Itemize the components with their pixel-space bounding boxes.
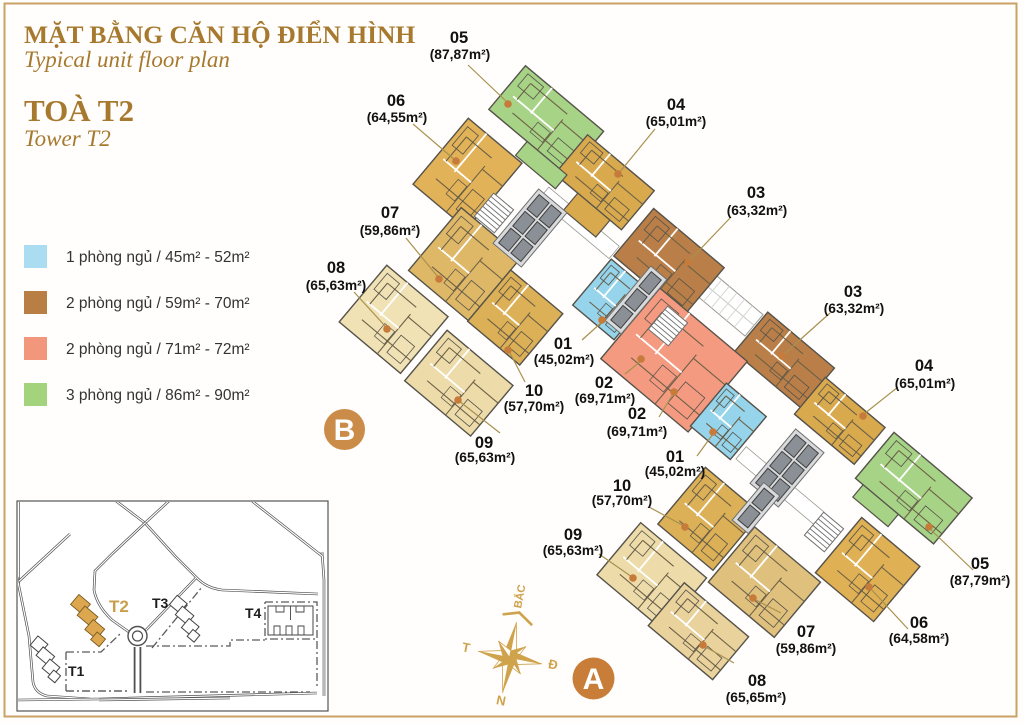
svg-text:(65,01m²): (65,01m²) — [895, 376, 956, 391]
svg-text:06: 06 — [387, 92, 405, 110]
svg-text:T4: T4 — [245, 605, 262, 621]
svg-text:09: 09 — [564, 526, 582, 544]
svg-text:1 phòng ngủ / 45m² - 52m²: 1 phòng ngủ / 45m² - 52m² — [66, 249, 250, 266]
svg-text:T3: T3 — [152, 595, 169, 611]
svg-text:(64,58m²): (64,58m²) — [889, 631, 950, 646]
svg-text:TOÀ T2: TOÀ T2 — [24, 93, 134, 128]
svg-text:3 phòng ngủ / 86m² - 90m²: 3 phòng ngủ / 86m² - 90m² — [66, 387, 250, 404]
svg-text:2 phòng ngủ / 59m² - 70m²: 2 phòng ngủ / 59m² - 70m² — [66, 295, 250, 312]
svg-text:05: 05 — [450, 29, 468, 47]
svg-text:(65,65m²): (65,65m²) — [726, 690, 787, 705]
svg-text:2 phòng ngủ / 71m² - 72m²: 2 phòng ngủ / 71m² - 72m² — [66, 341, 250, 358]
svg-text:MẶT BẰNG CĂN HỘ ĐIỂN HÌNH: MẶT BẰNG CĂN HỘ ĐIỂN HÌNH — [24, 20, 415, 49]
svg-text:(65,63m²): (65,63m²) — [543, 543, 604, 558]
svg-text:Typical unit floor plan: Typical unit floor plan — [24, 47, 230, 72]
svg-text:(57,70m²): (57,70m²) — [592, 493, 653, 508]
svg-text:(57,70m²): (57,70m²) — [504, 399, 565, 414]
svg-text:08: 08 — [748, 672, 766, 690]
svg-text:02: 02 — [595, 374, 613, 392]
svg-text:06: 06 — [910, 614, 928, 632]
svg-text:(45,02m²): (45,02m²) — [534, 352, 595, 367]
svg-text:(45,02m²): (45,02m²) — [645, 464, 706, 479]
svg-text:04: 04 — [915, 357, 934, 375]
svg-text:(65,63m²): (65,63m²) — [306, 278, 367, 293]
svg-text:(63,32m²): (63,32m²) — [727, 203, 788, 218]
svg-text:(65,01m²): (65,01m²) — [646, 114, 707, 129]
svg-text:(64,55m²): (64,55m²) — [367, 110, 428, 125]
svg-text:(87,87m²): (87,87m²) — [430, 47, 491, 62]
svg-text:10: 10 — [525, 382, 543, 400]
svg-text:T1: T1 — [68, 663, 85, 679]
svg-text:(63,32m²): (63,32m²) — [824, 301, 885, 316]
svg-text:(59,86m²): (59,86m²) — [776, 641, 837, 656]
svg-text:03: 03 — [747, 184, 765, 202]
svg-text:02: 02 — [628, 405, 646, 423]
svg-text:07: 07 — [381, 204, 399, 222]
svg-text:(69,71m²): (69,71m²) — [575, 391, 636, 406]
svg-text:B: B — [334, 414, 356, 447]
svg-text:(65,63m²): (65,63m²) — [455, 450, 516, 465]
svg-text:07: 07 — [797, 623, 815, 641]
svg-text:05: 05 — [971, 555, 989, 573]
svg-text:T2: T2 — [109, 597, 129, 616]
svg-text:A: A — [583, 663, 605, 696]
svg-text:03: 03 — [844, 283, 862, 301]
svg-text:04: 04 — [667, 96, 686, 114]
svg-text:01: 01 — [554, 335, 572, 353]
svg-text:Tower T2: Tower T2 — [24, 126, 111, 151]
svg-text:(69,71m²): (69,71m²) — [607, 424, 668, 439]
svg-text:08: 08 — [327, 259, 345, 277]
svg-text:(59,86m²): (59,86m²) — [360, 223, 421, 238]
svg-text:(87,79m²): (87,79m²) — [950, 573, 1011, 588]
